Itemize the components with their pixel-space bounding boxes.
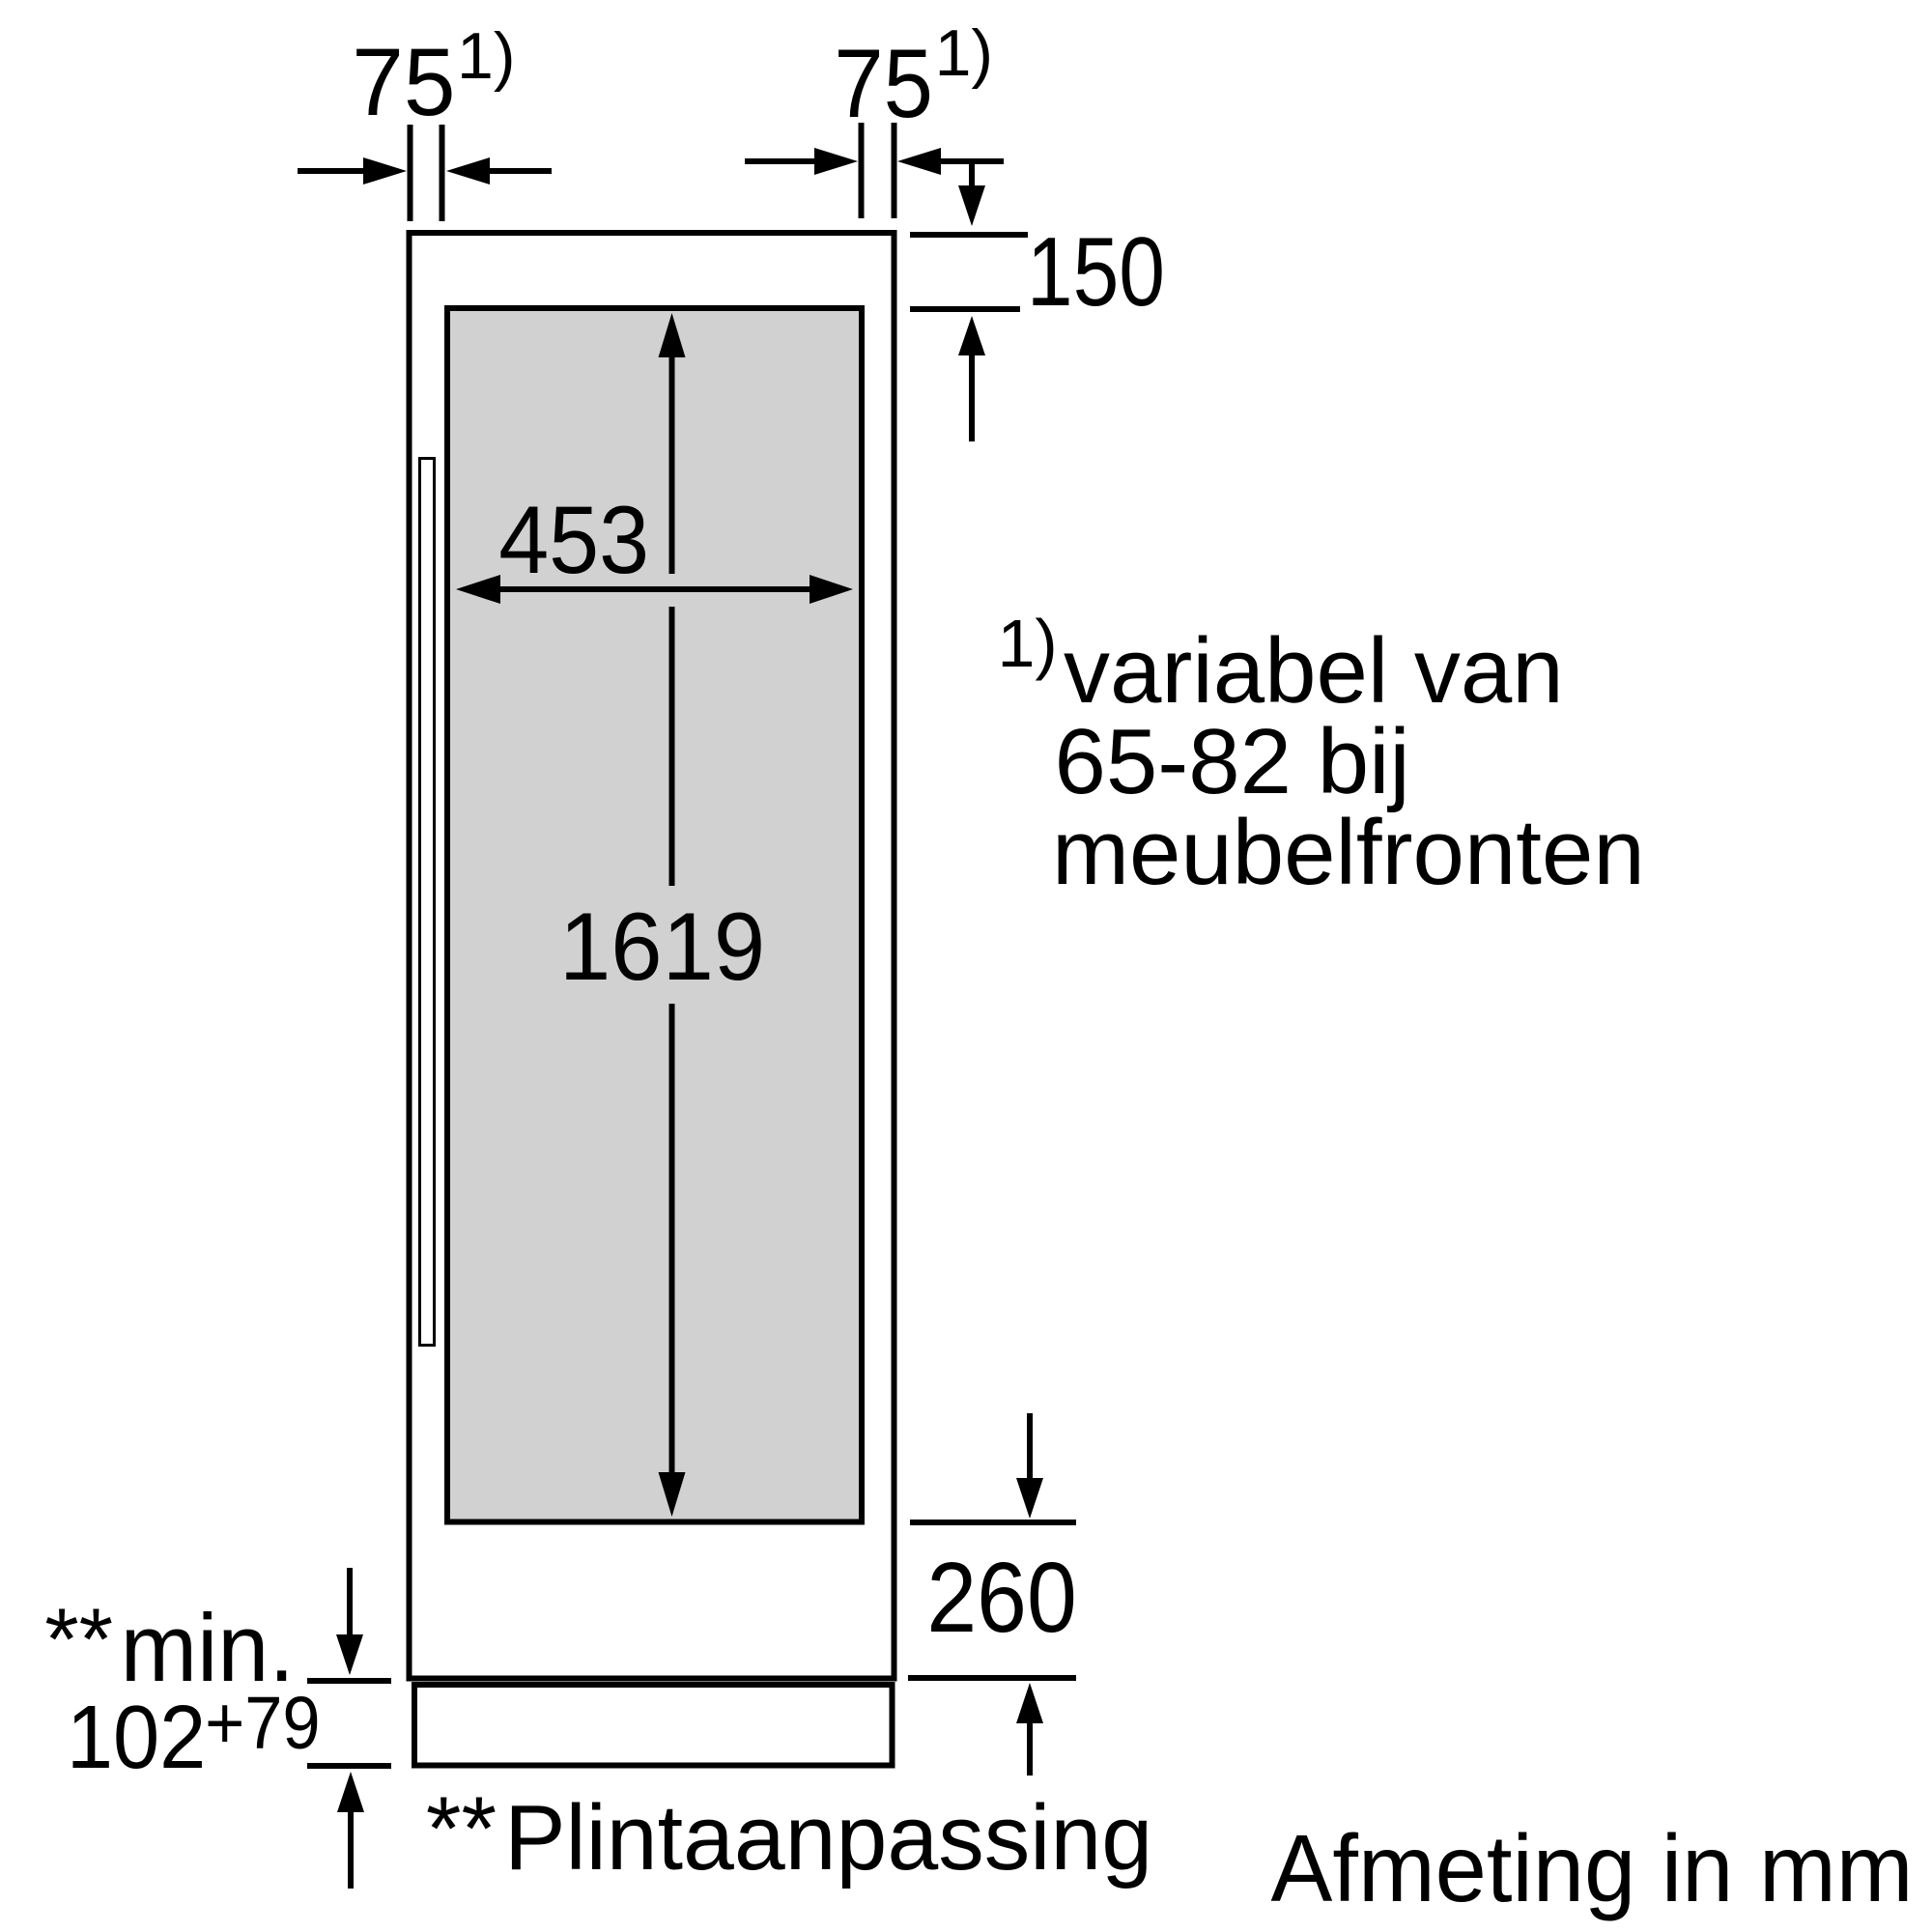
- svg-text:Plintaanpassing: Plintaanpassing: [504, 1787, 1152, 1890]
- svg-text:+79: +79: [205, 1681, 321, 1765]
- svg-text:1): 1): [935, 16, 993, 90]
- svg-text:meubelfronten: meubelfronten: [1052, 801, 1645, 904]
- svg-text:453: 453: [498, 488, 649, 594]
- svg-text:150: 150: [1027, 216, 1165, 326]
- svg-text:75: 75: [352, 29, 455, 135]
- svg-text:1619: 1619: [559, 894, 765, 1001]
- svg-text:75: 75: [834, 29, 933, 138]
- svg-text:**: **: [44, 1591, 113, 1689]
- svg-text:variabel van: variabel van: [1064, 619, 1564, 723]
- svg-text:1): 1): [998, 606, 1058, 681]
- svg-text:65-82 bij: 65-82 bij: [1055, 710, 1410, 813]
- svg-text:Afmeting in mm: Afmeting in mm: [1271, 1815, 1914, 1921]
- svg-text:102: 102: [67, 1688, 206, 1788]
- svg-text:260: 260: [926, 1542, 1076, 1653]
- svg-text:**: **: [426, 1777, 497, 1879]
- svg-text:1): 1): [457, 19, 515, 93]
